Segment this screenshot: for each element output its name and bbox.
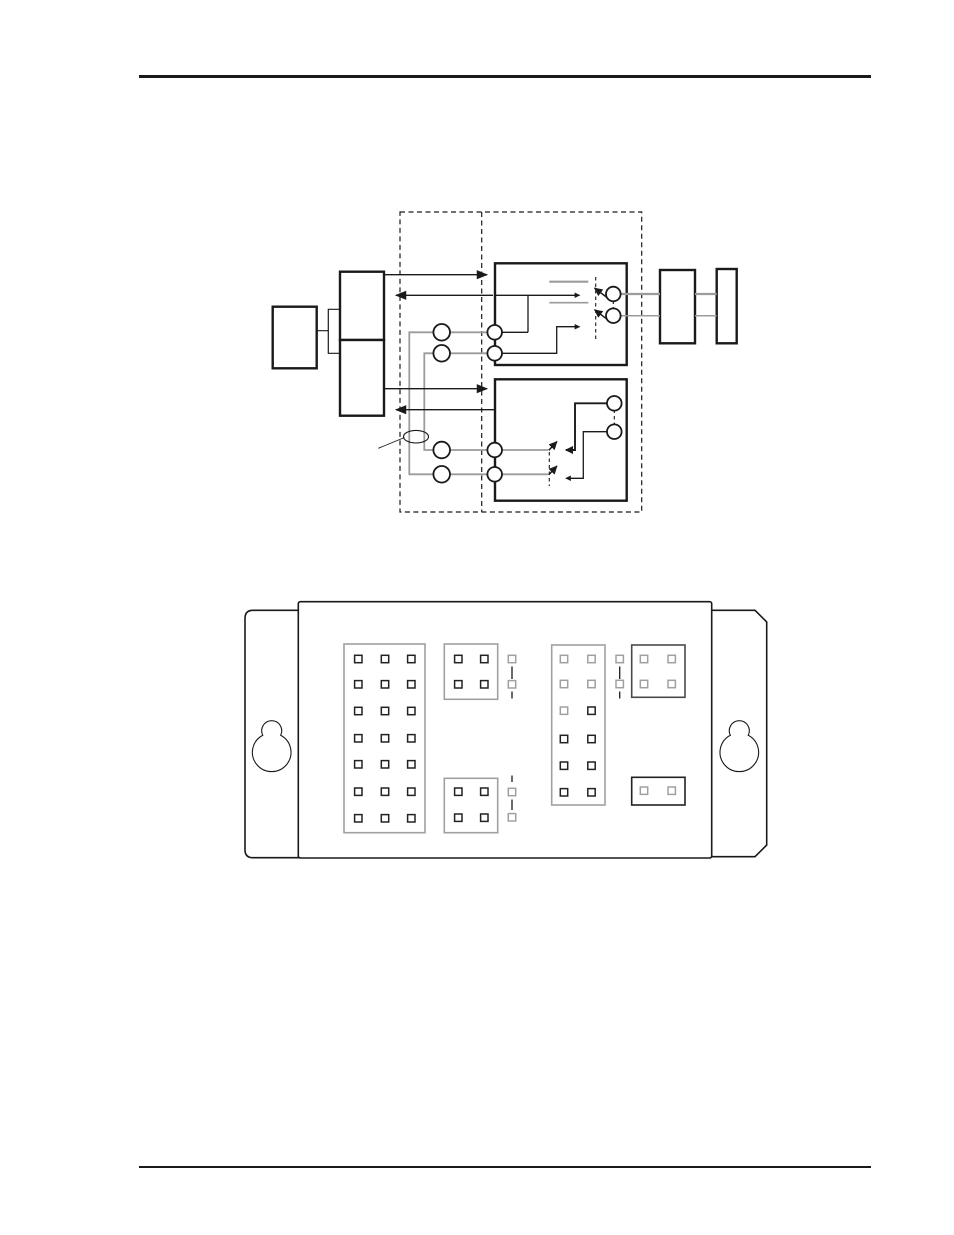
jumper-pin xyxy=(408,788,415,795)
manual-page xyxy=(0,0,954,1235)
jumper-pin xyxy=(408,707,415,714)
jumper-pin xyxy=(481,788,488,795)
jumper-pin xyxy=(381,707,388,714)
jumper-pin xyxy=(560,789,567,796)
jumper-pin xyxy=(408,681,415,688)
jumper-pin xyxy=(355,788,362,795)
jumper-pin xyxy=(381,681,388,688)
jumper-pin xyxy=(508,788,515,795)
jumper-pin xyxy=(455,655,462,662)
signal-arrows xyxy=(384,275,495,410)
jumper-pin xyxy=(560,707,567,714)
jumper-pin xyxy=(588,789,595,796)
jumper-pin xyxy=(588,762,595,769)
connector-bracket xyxy=(317,309,340,353)
jumper-pin xyxy=(481,681,488,688)
network-box xyxy=(660,270,695,343)
interface-box-pair xyxy=(340,272,384,416)
wire-pair-callout xyxy=(378,430,428,448)
jumper-pin xyxy=(355,735,362,742)
jumper-pin xyxy=(508,814,515,821)
jumper-pin xyxy=(355,761,362,768)
jumper-pin xyxy=(508,655,515,662)
jumper-pin xyxy=(408,815,415,822)
jumper-pin xyxy=(408,761,415,768)
jumper-pin xyxy=(560,762,567,769)
jumper-pin xyxy=(560,735,567,742)
jumper-pin xyxy=(381,788,388,795)
jumper-pin xyxy=(640,655,647,662)
jumper-pin xyxy=(355,655,362,662)
switch-module-lower xyxy=(495,379,627,500)
jumper-pin xyxy=(355,707,362,714)
jumper-pin xyxy=(355,815,362,822)
jumper-pin xyxy=(455,788,462,795)
jumper-pin xyxy=(616,655,623,662)
jumper-panel-figure xyxy=(235,590,775,870)
jumper-pin xyxy=(640,787,647,794)
jumper-pin xyxy=(381,735,388,742)
jumper-pin xyxy=(560,680,567,687)
header-rule xyxy=(139,75,871,78)
jumper-pin xyxy=(408,655,415,662)
block-diagram-figure xyxy=(250,200,750,525)
jumper-pin xyxy=(668,655,675,662)
jumper-block-b-top xyxy=(444,644,497,699)
jumper-pin xyxy=(588,707,595,714)
jumper-block-d-bottom xyxy=(632,777,685,805)
jumper-block-b-bottom xyxy=(444,778,497,832)
jumper-pin xyxy=(381,761,388,768)
jumper-pin xyxy=(381,655,388,662)
jumper-pin xyxy=(668,787,675,794)
jumper-pin xyxy=(560,655,567,662)
jumper-pin xyxy=(616,680,623,687)
jumper-pin xyxy=(455,814,462,821)
jumper-block-a xyxy=(344,644,425,833)
jumper-pin xyxy=(481,655,488,662)
jumper-block-d-top xyxy=(632,645,685,697)
jumper-pin xyxy=(668,680,675,687)
jumper-pin xyxy=(588,680,595,687)
jumper-pin xyxy=(481,814,488,821)
jumper-pin xyxy=(355,681,362,688)
wall-jack-box xyxy=(717,269,737,343)
jumper-pin xyxy=(508,681,515,688)
jumper-pin xyxy=(588,655,595,662)
jumper-pin xyxy=(455,681,462,688)
host-equipment-box xyxy=(273,307,317,369)
jumper-pin xyxy=(408,735,415,742)
jumper-pin xyxy=(640,680,647,687)
jumper-block-c xyxy=(552,645,605,805)
jumper-pin xyxy=(381,815,388,822)
demarcation-terminals xyxy=(433,324,450,483)
footer-rule xyxy=(139,1166,871,1168)
jumper-pin xyxy=(588,735,595,742)
